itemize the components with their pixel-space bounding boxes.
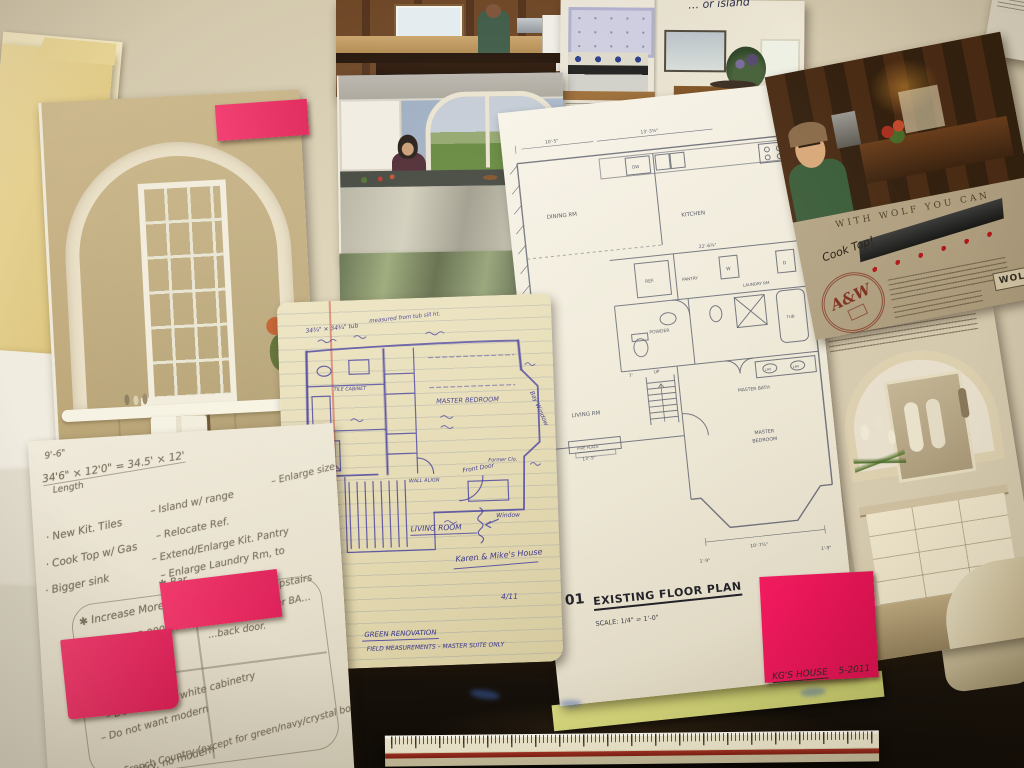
svg-text:MASTER BATH: MASTER BATH [738,384,770,393]
wolf-logo-text: WOLF [998,270,1024,286]
sketch-stairs [349,481,407,549]
svg-text:FIELD MEASUREMENTS – MASTER SU: FIELD MEASUREMENTS – MASTER SUITE ONLY [367,641,506,653]
plan-scale: SCALE: 1/4" = 1'-0" [595,613,659,628]
ruler-ticks-major [391,731,873,748]
powder-sink [659,312,676,326]
sketch-outline [304,340,542,517]
man-head [486,4,501,18]
woman-face [402,143,414,156]
note-mid-1: – Relocate Ref. [155,516,230,542]
svg-text:LIVING ROOM: LIVING ROOM [410,523,462,534]
svg-text:LAV: LAV [793,364,800,369]
sink-right [670,152,685,168]
svg-text:TILE CABINET: TILE CABINET [334,386,368,393]
bay-window [691,484,836,531]
underline-title [363,638,439,641]
svg-text:TUB: TUB [785,313,795,319]
pantry-walls [673,254,678,300]
note-calc-small: 9'-6" [44,448,67,461]
svg-text:Front Door: Front Door [462,462,495,475]
bathroom-clipping [38,89,318,480]
underline-house [454,562,538,569]
note-left-0: · New Kit. Tiles [45,517,124,544]
svg-text:Window: Window [496,512,520,520]
svg-text:DW: DW [632,164,640,170]
svg-text:LIVING RM: LIVING RM [571,410,600,419]
svg-text:MASTER BEDROOM: MASTER BEDROOM [436,395,499,405]
front-door-arc [459,476,484,501]
underline-living [411,533,477,535]
svg-text:LAV: LAV [765,367,772,372]
blue-plate-shelf [568,52,648,66]
svg-text:W: W [726,266,732,272]
bedroom-door-arc [682,411,708,437]
svg-text:4/11: 4/11 [501,592,518,602]
sketch-sink [317,366,331,376]
svg-text:GREEN RENOVATION: GREEN RENOVATION [364,628,437,639]
note-mid-0: – Island w/ range [150,489,235,517]
sketch-ceiling-dash [429,355,515,388]
sticky-note-large [60,628,180,719]
high-windows [664,30,726,73]
powder-door-arc [672,299,690,317]
kitchen-window [394,4,464,40]
svg-text:34¾" × 34¾" tub: 34¾" × 34¾" tub [305,322,359,335]
svg-text:LAUNDRY RM: LAUNDRY RM [743,280,770,288]
window-coil [477,508,483,543]
interior-walls [517,138,832,513]
door-arc-2 [417,458,434,475]
wall-poche [304,340,524,476]
svg-text:REF.: REF. [645,278,655,285]
hall-toilet [709,305,723,322]
wall-oven [831,111,861,149]
corner-paper-lines [997,0,1024,14]
svg-text:MASTER: MASTER [754,428,775,436]
note-left-1: · Cook Top w/ Gas [45,541,139,571]
svg-text:13'-5": 13'-5" [582,455,596,462]
sticky-note-bathroom [215,99,309,141]
svg-text:UP: UP [653,369,660,376]
svg-text:POWDER: POWDER [649,328,670,336]
ruler-red-stripe [385,748,879,758]
svg-text:KITCHEN: KITCHEN [681,210,705,218]
sketch-vanity [349,360,369,375]
up-arrow [658,384,668,422]
svg-text:13'-3⅜": 13'-3⅜" [640,128,658,136]
tile-mural [568,7,654,58]
tall-window [138,179,238,411]
svg-text:Karen & Mike's House: Karen & Mike's House [455,547,543,564]
svg-text:1'-9": 1'-9" [699,558,710,565]
kitchen-counter [336,53,594,63]
svg-text:WALL ALIGN: WALL ALIGN [409,477,440,484]
window-arrow [485,519,498,527]
svg-text:FIRE PLACE: FIRE PLACE [577,444,600,451]
note-left-2: · Bigger sink [44,573,110,598]
plan-number: 01 [564,591,585,609]
svg-text:DINING RM: DINING RM [547,212,578,221]
architect-scale-ruler [385,730,879,766]
svg-text:7': 7' [629,373,634,379]
svg-text:PANTRY: PANTRY [682,275,699,282]
svg-text:measured from tub sill ht.: measured from tub sill ht. [369,311,441,324]
range-stove [568,65,648,92]
plan-title-block: 01 EXISTING FLOOR PLAN SCALE: 1/4" = 1'-… [564,591,585,612]
sketch-closet [468,480,509,501]
blue-smudge-2 [560,700,582,707]
svg-text:1'-9": 1'-9" [821,545,832,552]
photo-design-moodboard: THE KAREN GREEN RESIDENCE … or island [0,0,1024,768]
sink-left [655,154,670,170]
svg-text:10'-7¾": 10'-7¾" [750,542,768,550]
ad-woman-shirt [786,156,854,222]
svg-text:22'-6¾": 22'-6¾" [698,242,716,250]
svg-text:BEDROOM: BEDROOM [752,436,778,445]
sketch-toilet [312,396,331,425]
lav-counter [755,356,816,378]
plan-title: EXISTING FLOOR PLAN [593,580,743,611]
dim-lines [515,118,825,562]
outer-walls [517,134,832,513]
svg-text:D: D [783,260,788,266]
svg-text:10'-5": 10'-5" [545,138,559,145]
